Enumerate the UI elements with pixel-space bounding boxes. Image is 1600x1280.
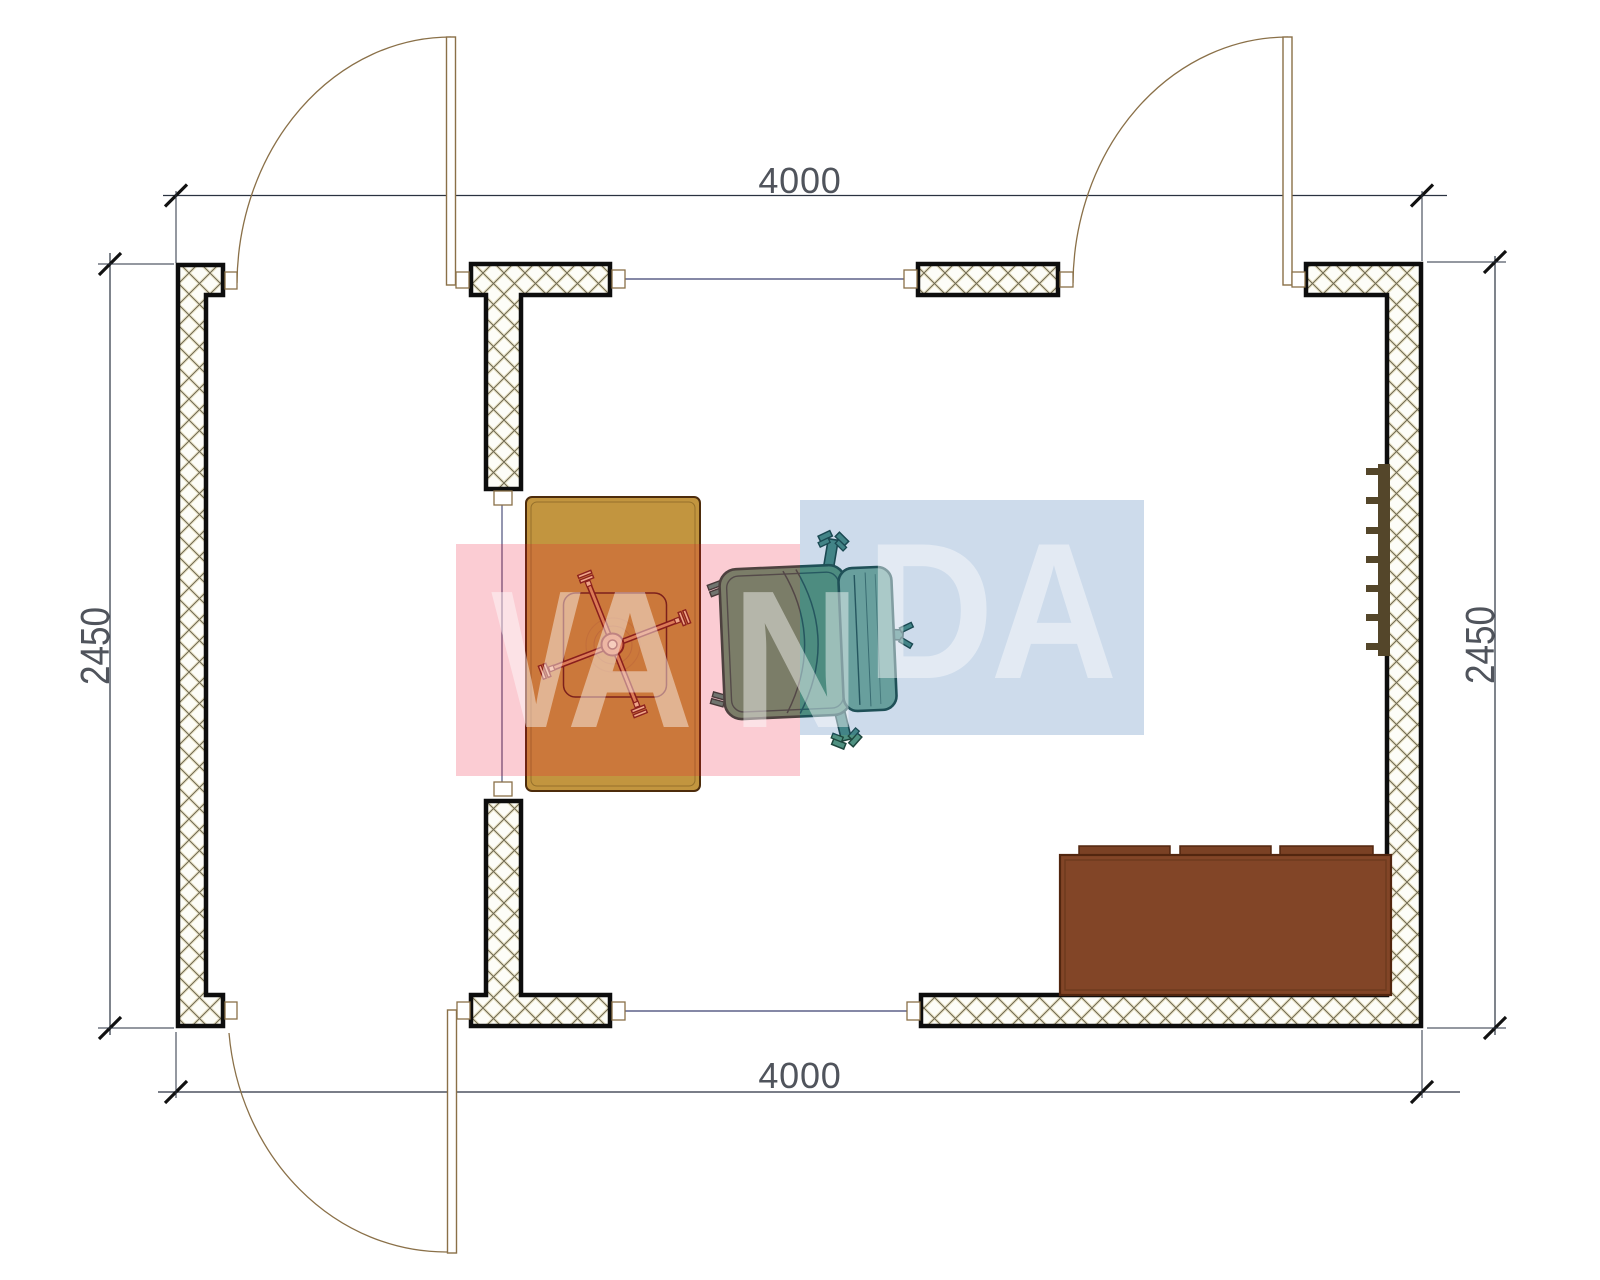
svg-text:2450: 2450 [1457,606,1503,684]
svg-text:2450: 2450 [72,607,118,685]
svg-text:4000: 4000 [758,1055,841,1096]
svg-text:4000: 4000 [758,160,841,201]
svg-text:A: A [991,503,1118,720]
svg-text:N: N [732,550,861,769]
svg-text:D: D [866,503,994,720]
svg-text:A: A [567,550,694,769]
